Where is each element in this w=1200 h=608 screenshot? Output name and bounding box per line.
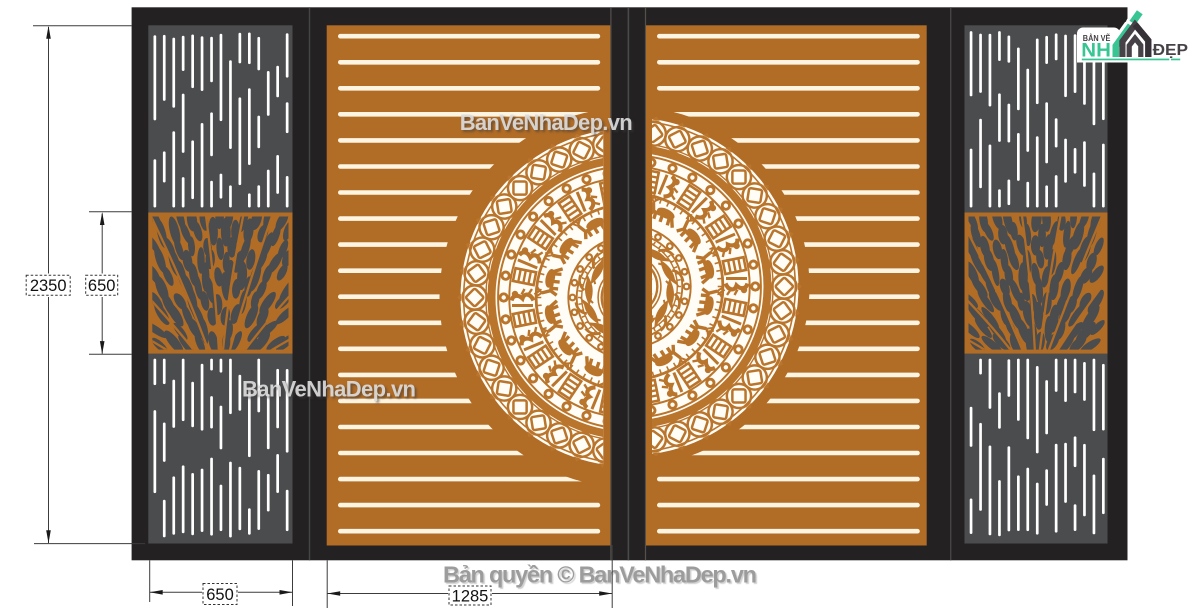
svg-text:650: 650 [88,277,116,295]
svg-text:NH: NH [1081,40,1111,61]
svg-text:650: 650 [206,586,234,604]
svg-text:ĐẸP: ĐẸP [1153,42,1188,59]
svg-text:2350: 2350 [30,277,67,295]
svg-text:BanVeNhaDep.vn: BanVeNhaDep.vn [242,377,416,402]
svg-text:1285: 1285 [452,587,489,605]
svg-text:BanVeNhaDep.vn: BanVeNhaDep.vn [460,110,633,135]
svg-text:Bản quyền © BanVeNhaDep.vn: Bản quyền © BanVeNhaDep.vn [443,562,757,588]
